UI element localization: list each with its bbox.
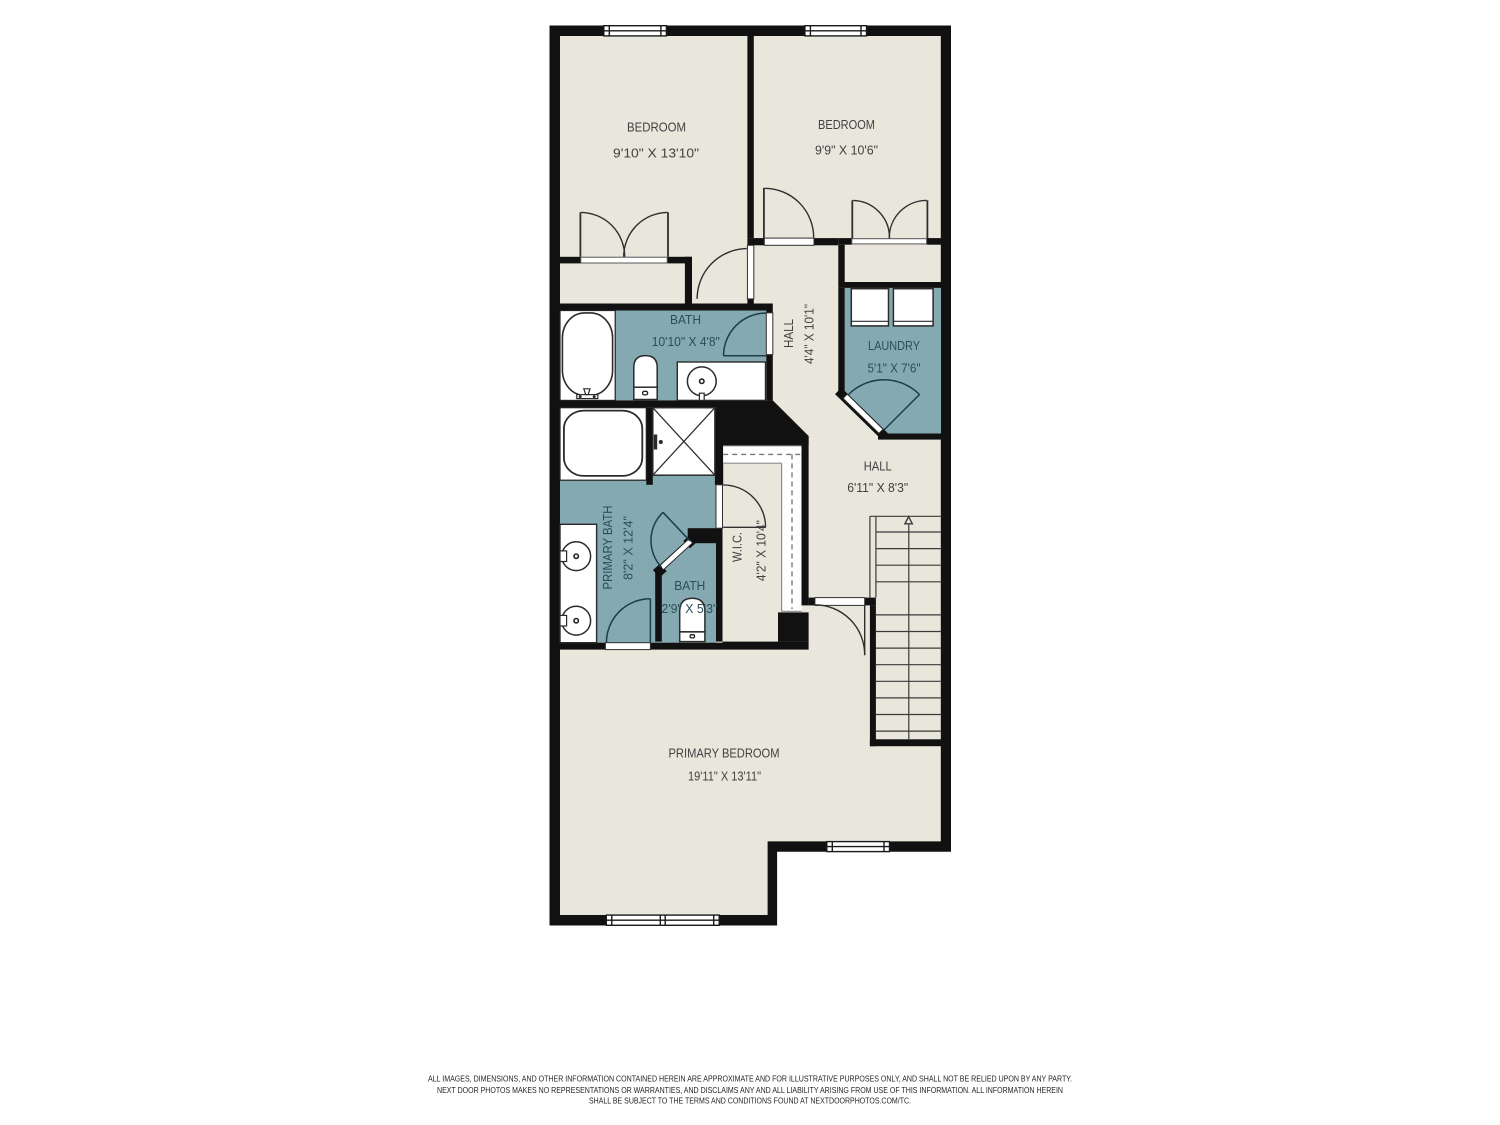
svg-text:6'11" X 8'3": 6'11" X 8'3" (847, 481, 908, 495)
svg-text:BEDROOM: BEDROOM (818, 117, 875, 132)
svg-text:4'4" X 10'1": 4'4" X 10'1" (803, 304, 817, 364)
svg-text:PRIMARY BEDROOM: PRIMARY BEDROOM (669, 745, 780, 760)
svg-text:NEXT DOOR PHOTOS MAKES NO REPR: NEXT DOOR PHOTOS MAKES NO REPRESENTATION… (437, 1086, 1063, 1095)
svg-text:8'2" X 12'4": 8'2" X 12'4" (622, 516, 636, 580)
svg-text:SHALL BE SUBJECT TO THE TERMS: SHALL BE SUBJECT TO THE TERMS AND CONDIT… (589, 1096, 911, 1105)
svg-text:9'10" X 13'10": 9'10" X 13'10" (613, 146, 699, 160)
svg-text:9'9" X 10'6": 9'9" X 10'6" (815, 144, 878, 158)
svg-text:10'10" X 4'8": 10'10" X 4'8" (652, 335, 720, 349)
svg-text:HALL: HALL (781, 319, 796, 348)
svg-text:HALL: HALL (864, 458, 892, 473)
svg-text:5'1" X 7'6": 5'1" X 7'6" (868, 362, 921, 376)
svg-text:LAUNDRY: LAUNDRY (868, 338, 920, 353)
svg-text:PRIMARY BATH: PRIMARY BATH (600, 506, 615, 590)
svg-text:W.I.C.: W.I.C. (730, 532, 745, 562)
svg-text:19'11" X 13'11": 19'11" X 13'11" (688, 770, 761, 784)
svg-text:4'2" X 10'4": 4'2" X 10'4" (755, 520, 769, 581)
svg-text:BATH: BATH (674, 578, 705, 593)
svg-text:BATH: BATH (670, 312, 701, 327)
svg-text:2'9" X 5'3": 2'9" X 5'3" (661, 602, 717, 616)
svg-text:ALL IMAGES, DIMENSIONS, AND OT: ALL IMAGES, DIMENSIONS, AND OTHER INFORM… (428, 1074, 1072, 1083)
svg-text:BEDROOM: BEDROOM (627, 120, 686, 135)
